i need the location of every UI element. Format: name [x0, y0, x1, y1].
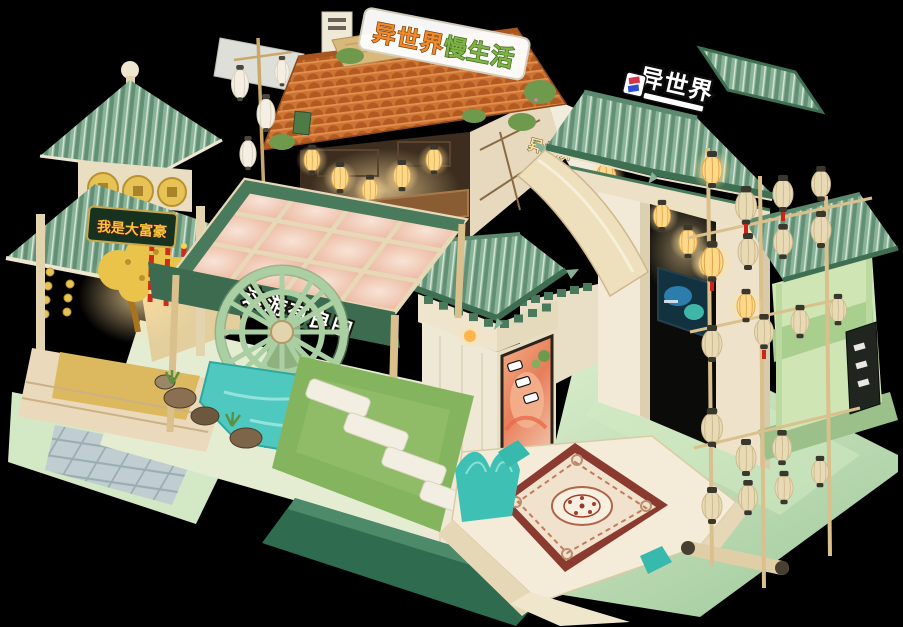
rod-cap [681, 541, 695, 555]
interior-lantern [385, 159, 419, 193]
booth-render-canvas: 异世界慢生活 异世界 异世界 [0, 0, 903, 627]
stall-sign [846, 322, 880, 414]
lantern [728, 288, 764, 324]
screen-caption [664, 300, 678, 303]
hanging-plaque [293, 111, 311, 135]
gate-lantern [645, 199, 679, 233]
carpet-medallion [552, 487, 612, 525]
scene-svg: 异世界慢生活 异世界 异世界 [0, 0, 903, 627]
screen-art [684, 304, 704, 320]
lantern [692, 150, 732, 190]
chimney-vent [328, 26, 346, 30]
lantern [690, 240, 734, 284]
round-lamp [464, 330, 476, 342]
interior-lantern [323, 161, 357, 195]
pillar-left-shade [640, 202, 650, 420]
gate-sign-logo [622, 72, 646, 98]
rod-cap [775, 561, 789, 575]
stall-post [776, 284, 782, 430]
canopy-post [458, 224, 462, 318]
chimney-vent [328, 18, 346, 22]
pagoda-sign: 我是大富豪 [87, 206, 178, 248]
wheel-hub [271, 321, 293, 343]
interior-lantern [296, 144, 328, 176]
interior-lantern [418, 144, 450, 176]
